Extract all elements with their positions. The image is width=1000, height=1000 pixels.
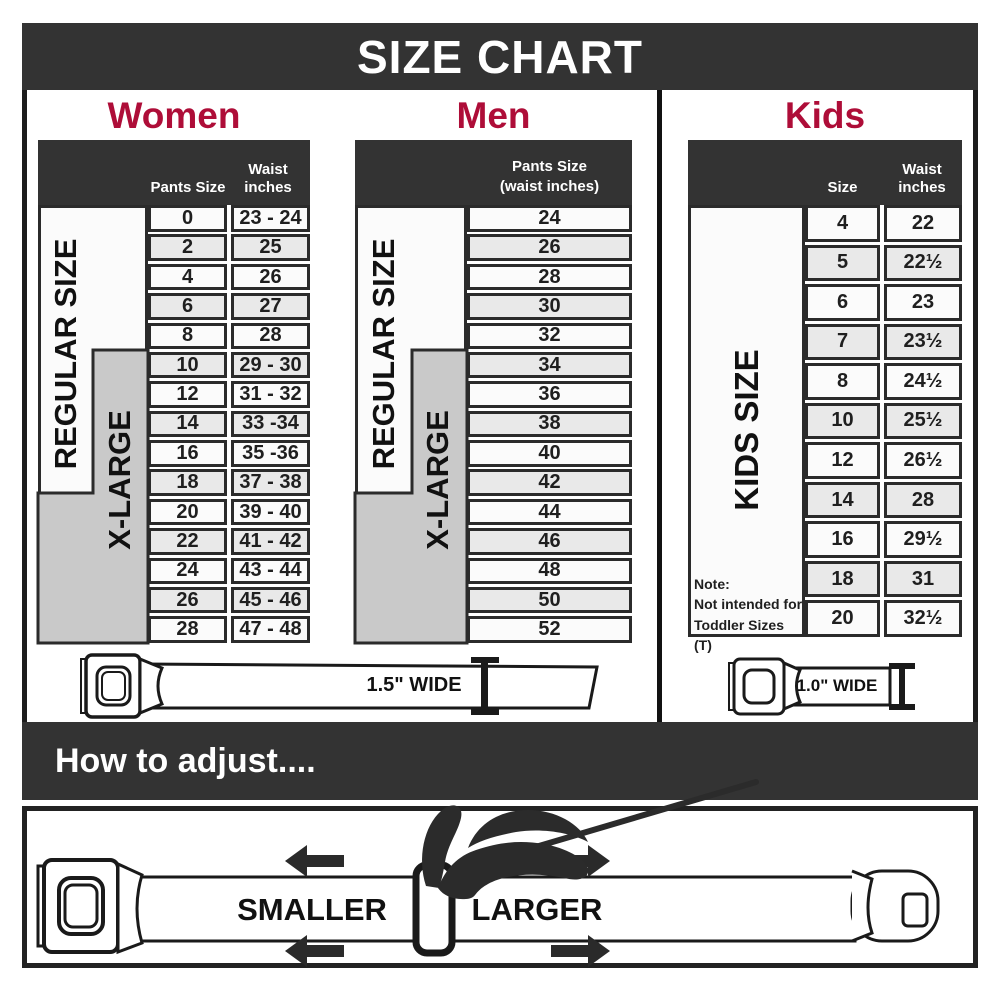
men-table-row: 40: [467, 440, 632, 467]
women-table-row: 26 45 - 46: [148, 587, 310, 614]
women-pants-size-cell: 0: [148, 205, 227, 232]
kids-table-row: 14 28: [805, 482, 962, 519]
kids-table-header: Size Waist inches: [688, 140, 962, 205]
women-table-row: 14 33 -34: [148, 411, 310, 438]
kids-col-waist-inches: Waist inches: [882, 161, 962, 199]
women-waist-cell: 27: [231, 293, 310, 320]
men-pants-size-cell: 46: [467, 528, 632, 555]
kids-size-cell: 6: [805, 284, 880, 321]
women-waist-cell: 25: [231, 234, 310, 261]
men-table-row: 26: [467, 234, 632, 261]
kids-table-row: 12 26½: [805, 442, 962, 479]
women-pants-size-cell: 26: [148, 587, 227, 614]
women-table-row: 24 43 - 44: [148, 558, 310, 585]
women-waist-cell: 43 - 44: [231, 558, 310, 585]
kids-waist-cell: 28: [884, 482, 962, 519]
men-pants-size-cell: 42: [467, 469, 632, 496]
kids-waist-cell: 26½: [884, 442, 962, 479]
women-pants-size-cell: 20: [148, 499, 227, 526]
size-chart-page: SIZE CHART Women Men Kids Pants Size Wai…: [0, 0, 1000, 1000]
kids-size-cell: 20: [805, 600, 880, 637]
women-table-row: 22 41 - 42: [148, 528, 310, 555]
kids-table-row: 10 25½: [805, 403, 962, 440]
page-title: SIZE CHART: [357, 30, 643, 84]
men-table-row: 28: [467, 264, 632, 291]
men-pants-size-cell: 34: [467, 352, 632, 379]
women-table-row: 4 26: [148, 264, 310, 291]
adult-belt-illustration: [81, 655, 597, 717]
men-pants-size-cell: 24: [467, 205, 632, 232]
men-table-row: 38: [467, 411, 632, 438]
larger-label: LARGER: [457, 892, 617, 928]
men-pants-size-cell: 52: [467, 616, 632, 643]
men-kids-divider: [657, 90, 662, 722]
adjust-illustration-box: [22, 806, 978, 968]
title-bar: SIZE CHART: [22, 23, 978, 90]
kids-waist-cell: 32½: [884, 600, 962, 637]
kids-table-row: 6 23: [805, 284, 962, 321]
kids-belt-width-label: 1.0" WIDE: [777, 676, 897, 696]
kids-waist-cell: 25½: [884, 403, 962, 440]
women-table-row: 28 47 - 48: [148, 616, 310, 643]
men-table-row: 32: [467, 323, 632, 350]
kids-waist-cell: 22½: [884, 245, 962, 282]
women-table-rows: 0 23 - 24 2 25 4 26 6 27 8 28: [148, 205, 310, 643]
men-table-row: 46: [467, 528, 632, 555]
men-table-row: 34: [467, 352, 632, 379]
kids-size-cell: 4: [805, 205, 880, 242]
men-pants-size-cell: 40: [467, 440, 632, 467]
kids-table-row: 8 24½: [805, 363, 962, 400]
men-pants-size-cell: 30: [467, 293, 632, 320]
kids-note-line1: Note:: [694, 574, 804, 594]
women-waist-cell: 33 -34: [231, 411, 310, 438]
kids-waist-cell: 29½: [884, 521, 962, 558]
men-col-line2: (waist inches): [467, 177, 632, 197]
men-col-header: Pants Size (waist inches): [467, 157, 632, 196]
kids-table-row: 4 22: [805, 205, 962, 242]
men-pants-size-cell: 44: [467, 499, 632, 526]
kids-table-row: 20 32½: [805, 600, 962, 637]
men-table-row: 42: [467, 469, 632, 496]
women-table-row: 6 27: [148, 293, 310, 320]
men-table-row: 50: [467, 587, 632, 614]
men-table-row: 30: [467, 293, 632, 320]
men-section-heading: Men: [355, 94, 632, 138]
men-pants-size-cell: 28: [467, 264, 632, 291]
kids-size-cell: 7: [805, 324, 880, 361]
women-waist-cell: 37 - 38: [231, 469, 310, 496]
kids-table-rows: 4 22 5 22½ 6 23 7 23½ 8 24½: [805, 205, 962, 637]
women-table-row: 12 31 - 32: [148, 381, 310, 408]
kids-table-row: 18 31: [805, 561, 962, 598]
kids-size-cell: 18: [805, 561, 880, 598]
adult-belt-width-label: 1.5" WIDE: [344, 674, 484, 697]
kids-col-size: Size: [805, 179, 880, 198]
men-col-line1: Pants Size: [467, 157, 632, 177]
women-pants-size-cell: 2: [148, 234, 227, 261]
women-table-header: Pants Size Waist inches: [38, 140, 310, 205]
women-col-waist-inches: Waist inches: [228, 161, 308, 199]
kids-size-cell: 16: [805, 521, 880, 558]
kids-waist-cell: 23: [884, 284, 962, 321]
women-waist-cell: 47 - 48: [231, 616, 310, 643]
women-table-row: 16 35 -36: [148, 440, 310, 467]
women-pants-size-cell: 6: [148, 293, 227, 320]
kids-waist-cell: 24½: [884, 363, 962, 400]
women-table-row: 20 39 - 40: [148, 499, 310, 526]
women-regular-size-label: REGULAR SIZE: [44, 204, 88, 504]
women-waist-cell: 31 - 32: [231, 381, 310, 408]
women-waist-cell: 45 - 46: [231, 587, 310, 614]
women-table-row: 0 23 - 24: [148, 205, 310, 232]
women-pants-size-cell: 4: [148, 264, 227, 291]
women-waist-cell: 39 - 40: [231, 499, 310, 526]
kids-size-cell: 10: [805, 403, 880, 440]
women-section-heading: Women: [38, 94, 310, 138]
women-waist-cell: 35 -36: [231, 440, 310, 467]
kids-size-cell: 14: [805, 482, 880, 519]
women-pants-size-cell: 12: [148, 381, 227, 408]
women-waist-cell: 41 - 42: [231, 528, 310, 555]
men-table-row: 44: [467, 499, 632, 526]
men-pants-size-cell: 50: [467, 587, 632, 614]
men-pants-size-cell: 26: [467, 234, 632, 261]
women-table-row: 2 25: [148, 234, 310, 261]
kids-waist-cell: 23½: [884, 324, 962, 361]
smaller-label: SMALLER: [232, 892, 392, 928]
men-pants-size-cell: 36: [467, 381, 632, 408]
frame-left-border: [22, 90, 27, 722]
men-table-row: 24: [467, 205, 632, 232]
kids-table-row: 5 22½: [805, 245, 962, 282]
women-pants-size-cell: 24: [148, 558, 227, 585]
kids-section-heading: Kids: [688, 94, 962, 138]
kids-size-label: KIDS SIZE: [725, 310, 769, 550]
how-to-adjust-label: How to adjust....: [22, 742, 316, 781]
kids-size-cell: 5: [805, 245, 880, 282]
women-pants-size-cell: 16: [148, 440, 227, 467]
kids-size-cell: 8: [805, 363, 880, 400]
kids-size-cell: 12: [805, 442, 880, 479]
kids-table-row: 16 29½: [805, 521, 962, 558]
men-pants-size-cell: 32: [467, 323, 632, 350]
frame-right-border: [973, 90, 978, 722]
women-waist-cell: 26: [231, 264, 310, 291]
women-pants-size-cell: 10: [148, 352, 227, 379]
men-table-header: Pants Size (waist inches): [355, 140, 632, 205]
women-table-row: 18 37 - 38: [148, 469, 310, 496]
men-table-row: 52: [467, 616, 632, 643]
kids-note-line3: Toddler Sizes (T): [694, 615, 804, 656]
men-table-row: 36: [467, 381, 632, 408]
women-pants-size-cell: 8: [148, 323, 227, 350]
women-table-row: 8 28: [148, 323, 310, 350]
women-xlarge-label: X-LARGE: [98, 370, 142, 590]
women-waist-cell: 23 - 24: [231, 205, 310, 232]
kids-note: Note: Not intended for Toddler Sizes (T): [694, 574, 804, 655]
men-xlarge-label: X-LARGE: [416, 370, 460, 590]
kids-note-line2: Not intended for: [694, 594, 804, 614]
women-waist-cell: 28: [231, 323, 310, 350]
men-table-rows: 24 26 28 30 32 34 36: [467, 205, 632, 643]
how-to-adjust-bar: How to adjust....: [22, 722, 978, 800]
men-regular-size-label: REGULAR SIZE: [362, 204, 406, 504]
women-pants-size-cell: 28: [148, 616, 227, 643]
kids-waist-cell: 31: [884, 561, 962, 598]
women-col-pants-size: Pants Size: [148, 179, 228, 198]
men-pants-size-cell: 38: [467, 411, 632, 438]
women-pants-size-cell: 18: [148, 469, 227, 496]
kids-table-row: 7 23½: [805, 324, 962, 361]
women-pants-size-cell: 14: [148, 411, 227, 438]
women-pants-size-cell: 22: [148, 528, 227, 555]
kids-waist-cell: 22: [884, 205, 962, 242]
women-table-row: 10 29 - 30: [148, 352, 310, 379]
men-table-row: 48: [467, 558, 632, 585]
men-pants-size-cell: 48: [467, 558, 632, 585]
women-waist-cell: 29 - 30: [231, 352, 310, 379]
